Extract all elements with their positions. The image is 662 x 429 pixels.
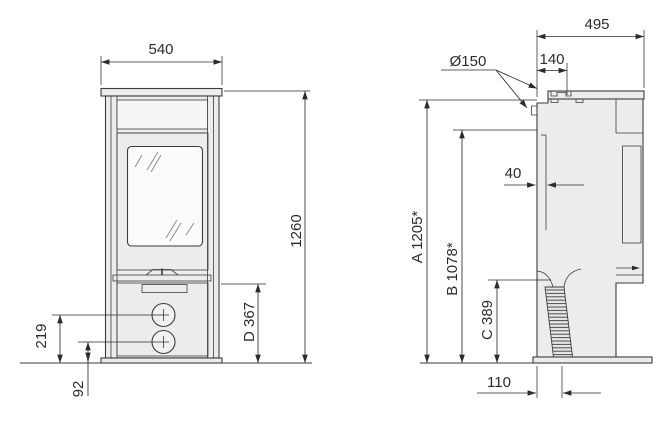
dim-110: 110 [477, 366, 601, 398]
dim-140: 140 [537, 51, 567, 95]
dim-92-label: 92 [70, 381, 87, 398]
side-stove [420, 91, 652, 363]
dim-110-label: 110 [487, 374, 511, 391]
dim-219-label: 219 [33, 323, 50, 348]
top-plate [101, 89, 222, 97]
dim-d367: D 367 [221, 284, 266, 363]
base-strip [101, 358, 222, 363]
dim-b-label: B 1078* [444, 242, 461, 296]
dim-540: 540 [101, 41, 222, 85]
top-panel [117, 100, 208, 129]
rear-flue-knockout [532, 106, 538, 115]
front-view: 540 1260 D 367 219 92 [20, 41, 312, 397]
dim-1260: 1260 [224, 91, 310, 363]
technical-drawing: 540 1260 D 367 219 92 [0, 0, 662, 429]
stove-dimension-drawing: 540 1260 D 367 219 92 [0, 0, 662, 429]
dim-a-1205: A 1205* [409, 100, 537, 363]
dim-1260-label: 1260 [288, 214, 305, 247]
dim-a-label: A 1205* [409, 211, 426, 264]
side-view: 495 140 Ø150 40 A 1205* B 1078* [409, 16, 652, 398]
base-plate [533, 357, 652, 363]
dim-flue-diameter-label: Ø150 [450, 53, 487, 70]
dim-540-label: 540 [148, 41, 173, 58]
dim-40-label: 40 [505, 165, 522, 182]
dim-140-label: 140 [539, 51, 564, 68]
dim-495-label: 495 [584, 16, 609, 33]
dim-c-label: C 389 [479, 300, 496, 340]
front-stove [20, 89, 312, 364]
dim-d367-label: D 367 [241, 302, 258, 342]
